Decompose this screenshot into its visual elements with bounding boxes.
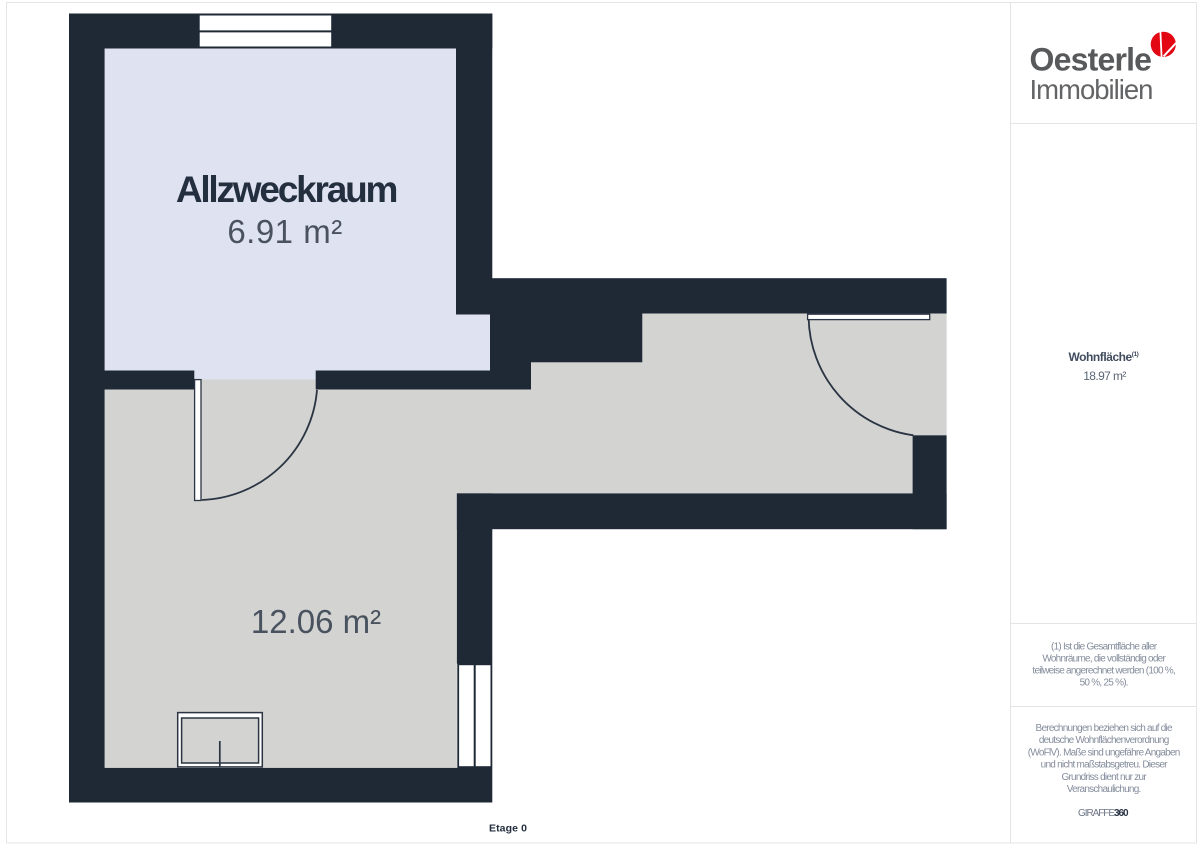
svg-text:12.06 m²: 12.06 m²	[251, 603, 381, 640]
svg-text:Veranschaulichung.: Veranschaulichung.	[1067, 784, 1141, 795]
svg-text:und nicht maßstabsgetreu. Dies: und nicht maßstabsgetreu. Dieser	[1041, 760, 1168, 771]
svg-text:Berechnungen beziehen sich auf: Berechnungen beziehen sich auf die	[1036, 723, 1173, 734]
svg-text:(WoFlV). Maße sind ungefähre A: (WoFlV). Maße sind ungefähre Angaben	[1028, 747, 1180, 758]
svg-text:Immobilien: Immobilien	[1030, 74, 1153, 105]
svg-text:Allzweckraum: Allzweckraum	[176, 169, 397, 210]
svg-text:18.97 m²: 18.97 m²	[1083, 369, 1126, 383]
svg-text:50 %, 25 %).: 50 %, 25 %).	[1080, 678, 1128, 689]
svg-text:Etage 0: Etage 0	[489, 823, 527, 835]
svg-text:(1) Ist die Gesamtfläche aller: (1) Ist die Gesamtfläche aller	[1051, 642, 1158, 653]
svg-text:teilweise angerechnet werden (: teilweise angerechnet werden (100 %,	[1032, 666, 1175, 677]
svg-text:Wohnfläche(1): Wohnfläche(1)	[1069, 350, 1139, 364]
svg-text:6.91 m²: 6.91 m²	[227, 213, 342, 250]
svg-text:Oesterle: Oesterle	[1030, 42, 1152, 78]
svg-text:GIRAFFE360: GIRAFFE360	[1078, 808, 1129, 819]
svg-text:Wohnräume, die vollständig ode: Wohnräume, die vollständig oder	[1042, 654, 1166, 665]
svg-text:deutsche Wohnflächenverordnung: deutsche Wohnflächenverordnung	[1039, 735, 1169, 746]
svg-text:Grundriss dient nur zur: Grundriss dient nur zur	[1061, 772, 1147, 783]
